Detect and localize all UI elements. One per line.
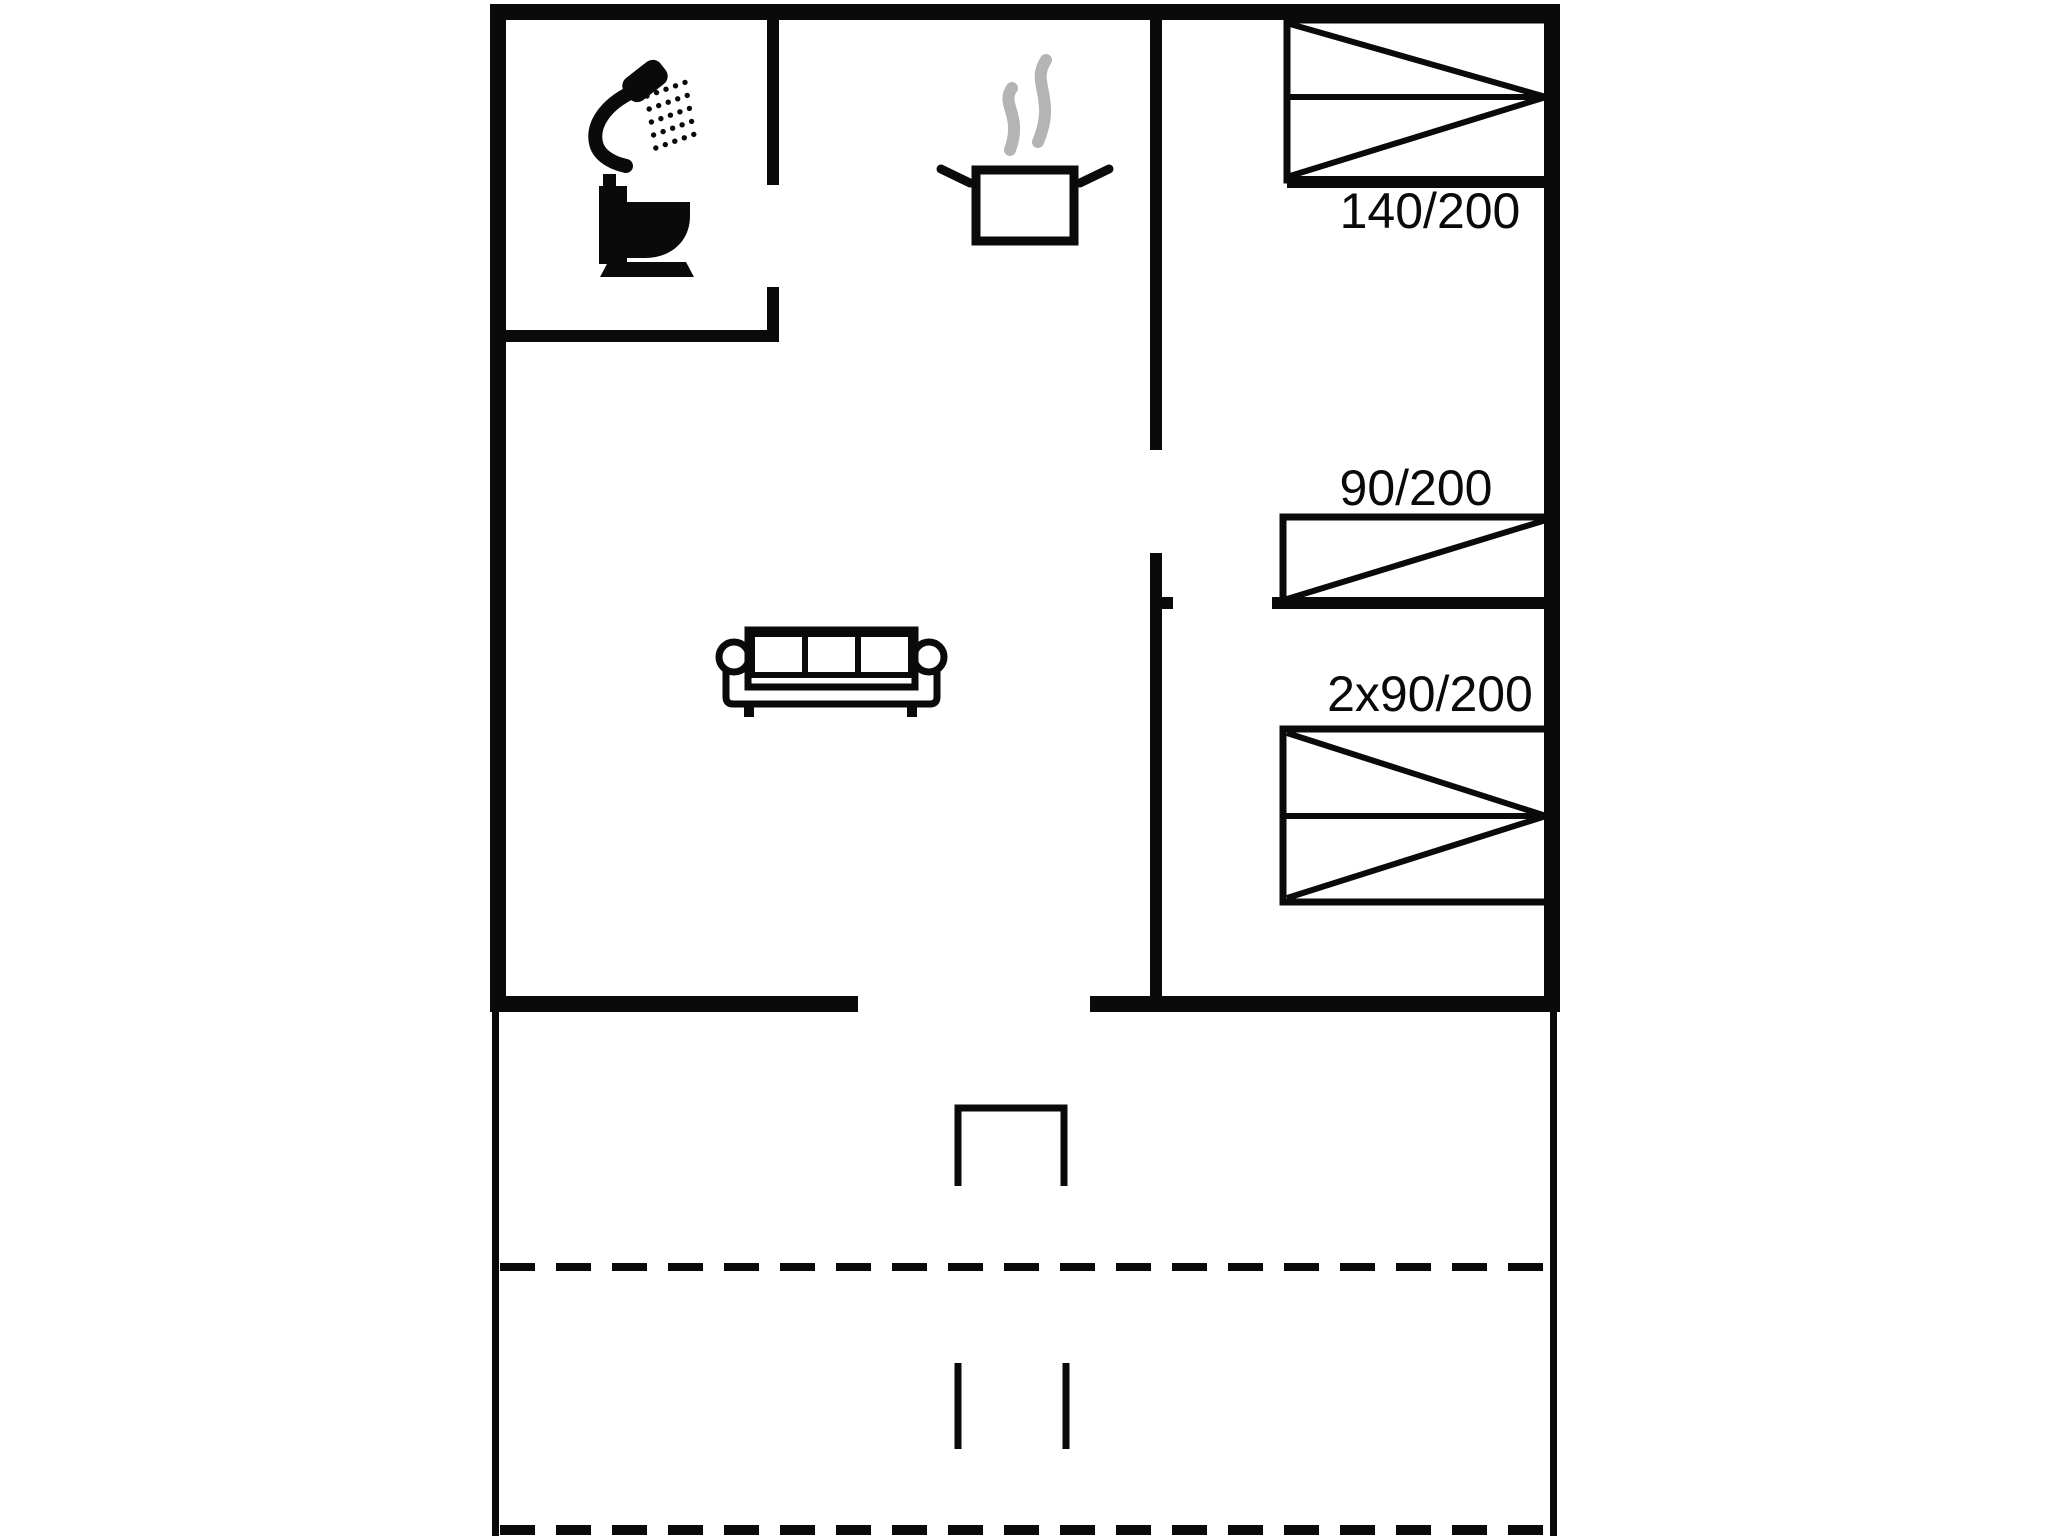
terrace-left-edge	[492, 1012, 499, 1536]
sofa-foot-left	[744, 704, 754, 717]
bathroom-walls	[492, 20, 779, 342]
sofa-icon	[719, 630, 944, 717]
bathroom-bottom-wall	[492, 330, 779, 342]
shower-icon	[595, 56, 696, 166]
sofa-cushion-1	[752, 634, 805, 675]
toilet-foot	[600, 262, 694, 277]
bed-diagonal-bottom	[1290, 97, 1546, 176]
floor-plan: 140/200 90/200 2x90/200	[0, 0, 2048, 1536]
sofa-foot-right	[907, 704, 917, 717]
terrace-right-edge	[1550, 1012, 1557, 1536]
bed-140x200	[1287, 20, 1548, 180]
toilet-bowl	[627, 202, 690, 258]
toilet-button	[603, 174, 616, 186]
terrace-door-step	[958, 1108, 1064, 1186]
bed-2x90x200-label: 2x90/200	[1327, 666, 1533, 722]
shower-handle	[595, 92, 632, 166]
bathroom-right-wall-upper	[767, 20, 779, 185]
steam-plume-left	[1008, 88, 1014, 150]
pot-handle-left	[941, 169, 970, 183]
wall-left	[490, 4, 506, 1012]
bed-140x200-label: 140/200	[1340, 183, 1521, 239]
toilet-icon	[599, 174, 694, 277]
bed-2x90x200	[1283, 729, 1548, 902]
wall-bottom-left-segment	[490, 996, 858, 1012]
door-jamb-tick	[1162, 597, 1173, 609]
floor-plan-canvas: 140/200 90/200 2x90/200	[0, 0, 2048, 1536]
bedroom-divider-walls	[1272, 176, 1560, 609]
sofa-cushion-2	[805, 634, 858, 675]
separator-wall-lower	[1150, 553, 1162, 996]
steam-plume-right	[1038, 60, 1046, 142]
wall-bottom-right-segment	[1090, 996, 1560, 1012]
pot-body	[976, 170, 1074, 241]
bed-diagonal-top	[1290, 24, 1546, 97]
terrace-path-markers	[958, 1363, 1066, 1449]
steam-icon	[1008, 60, 1046, 150]
toilet-tank	[599, 186, 627, 264]
bed-diagonal-bottom	[1287, 816, 1546, 898]
separator-wall-upper	[1150, 20, 1162, 450]
bed-diagonal-top	[1287, 733, 1546, 816]
terrace	[492, 1012, 1557, 1536]
hall-separator-wall	[1150, 20, 1173, 996]
bed-90x200	[1283, 517, 1548, 603]
bed-90x200-label: 90/200	[1340, 460, 1493, 516]
bed-diagonal	[1287, 520, 1546, 599]
sofa-cushion-3	[858, 634, 911, 675]
cooking-pot-icon	[941, 169, 1109, 241]
pot-handle-right	[1080, 169, 1109, 183]
